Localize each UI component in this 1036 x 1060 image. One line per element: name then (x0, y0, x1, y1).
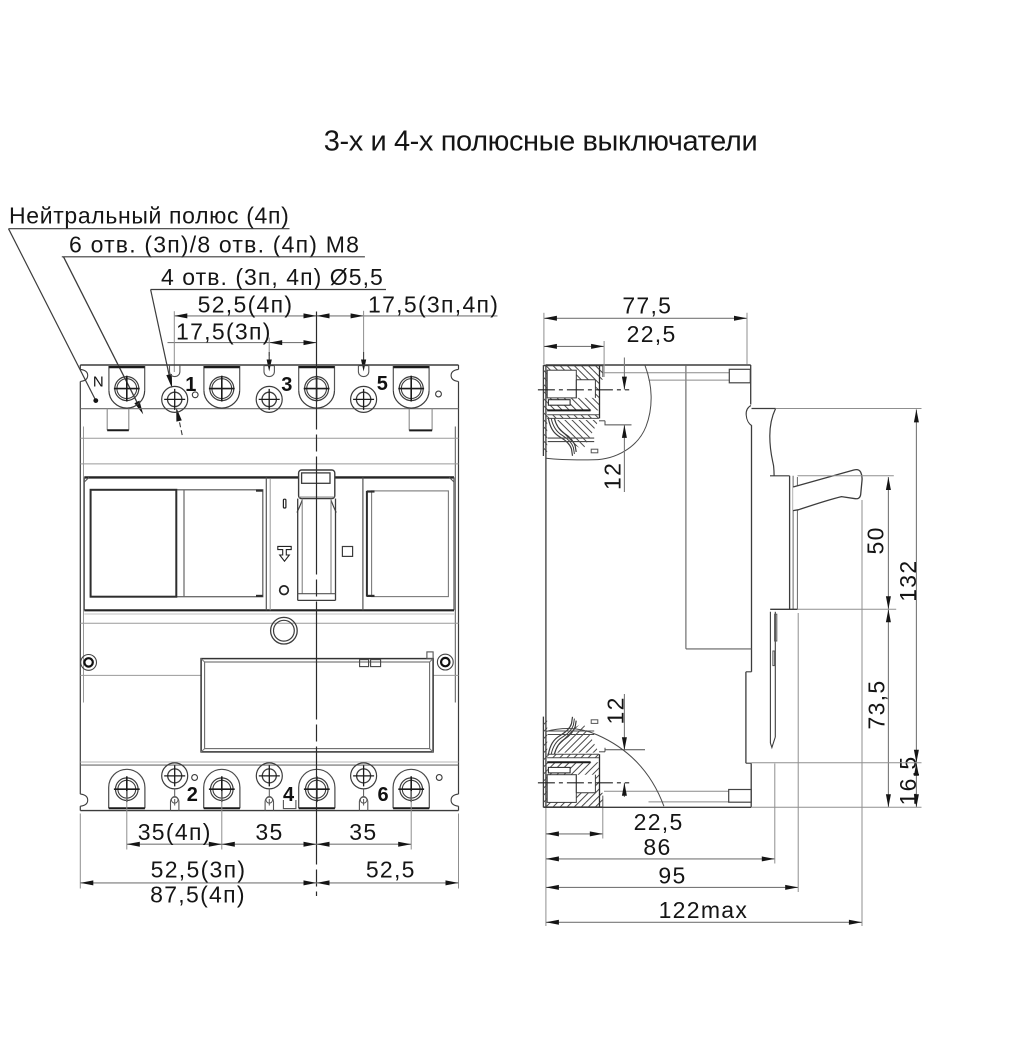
svg-text:132: 132 (895, 560, 921, 602)
svg-text:3: 3 (281, 374, 292, 396)
svg-text:Нейтральный полюс (4п): Нейтральный полюс (4п) (9, 202, 289, 228)
svg-text:6: 6 (377, 784, 388, 806)
svg-text:17,5(3п): 17,5(3п) (176, 319, 272, 345)
svg-text:1: 1 (185, 374, 196, 396)
svg-text:35(4п): 35(4п) (138, 819, 212, 845)
svg-text:6 отв. (3п)/8 отв. (4п) М8: 6 отв. (3п)/8 отв. (4п) М8 (69, 232, 360, 258)
svg-text:N: N (93, 374, 104, 391)
svg-text:87,5(4п): 87,5(4п) (150, 881, 246, 907)
svg-text:73,5: 73,5 (864, 680, 890, 730)
svg-text:35: 35 (349, 819, 377, 845)
svg-text:3-х и 4-х полюсные выключатели: 3-х и 4-х полюсные выключатели (324, 126, 758, 158)
svg-text:35: 35 (255, 819, 283, 845)
svg-text:52,5(3п): 52,5(3п) (151, 857, 247, 883)
svg-text:22,5: 22,5 (634, 809, 684, 835)
svg-text:12: 12 (603, 696, 629, 724)
svg-text:17,5(3п,4п): 17,5(3п,4п) (368, 292, 499, 318)
svg-text:52,5(4п): 52,5(4п) (198, 292, 294, 318)
svg-text:4: 4 (283, 784, 295, 806)
svg-text:122max: 122max (659, 897, 749, 923)
svg-text:5: 5 (377, 373, 388, 395)
svg-text:2: 2 (187, 784, 198, 806)
svg-text:86: 86 (643, 834, 671, 860)
svg-text:95: 95 (658, 863, 686, 889)
svg-text:52,5: 52,5 (366, 857, 416, 883)
svg-text:4 отв. (3п, 4п) Ø5,5: 4 отв. (3п, 4п) Ø5,5 (161, 264, 384, 290)
svg-text:12: 12 (600, 462, 626, 490)
svg-text:50: 50 (863, 526, 889, 554)
svg-text:22,5: 22,5 (627, 321, 677, 347)
svg-text:77,5: 77,5 (622, 293, 672, 319)
